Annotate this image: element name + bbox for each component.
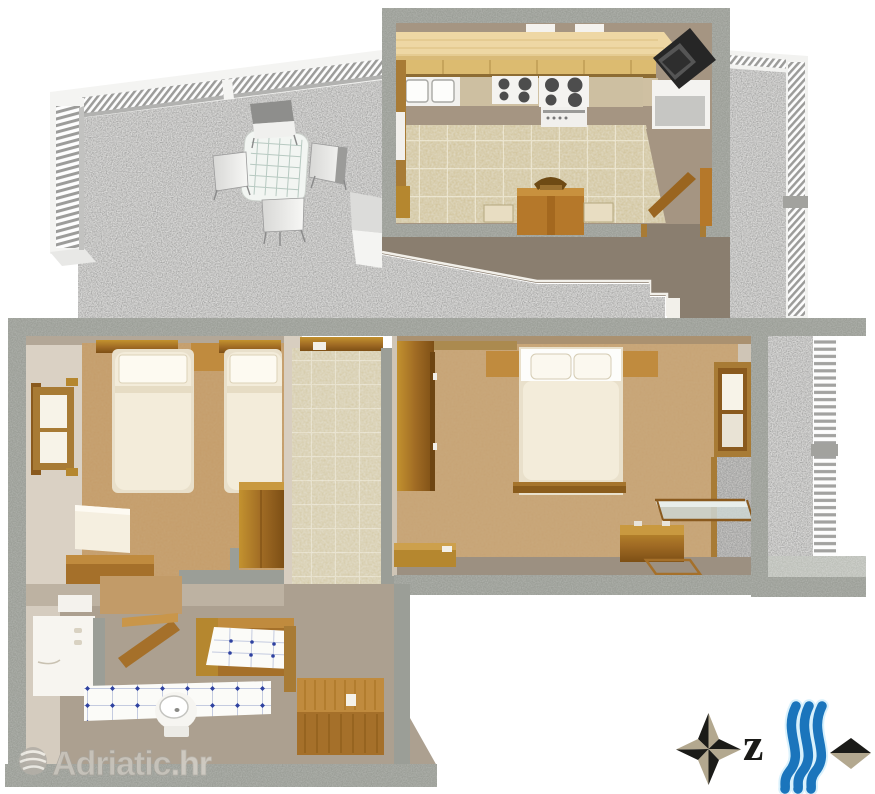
svg-text:z: z: [743, 719, 763, 770]
svg-text:Adriatic.hr: Adriatic.hr: [52, 745, 212, 783]
